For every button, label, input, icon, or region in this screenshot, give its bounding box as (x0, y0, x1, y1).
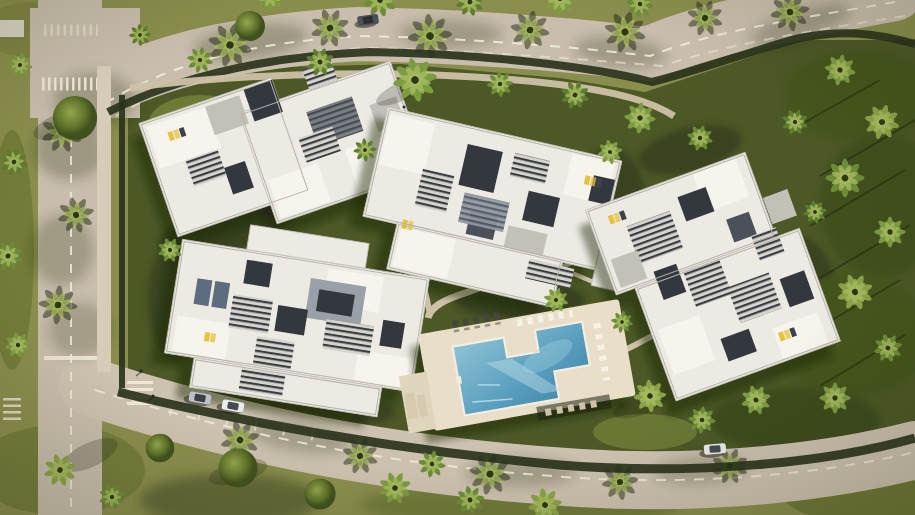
vignette-overlay (0, 0, 915, 515)
aerial-photo-residential-complex (0, 0, 915, 515)
screenshot-root (0, 0, 915, 515)
